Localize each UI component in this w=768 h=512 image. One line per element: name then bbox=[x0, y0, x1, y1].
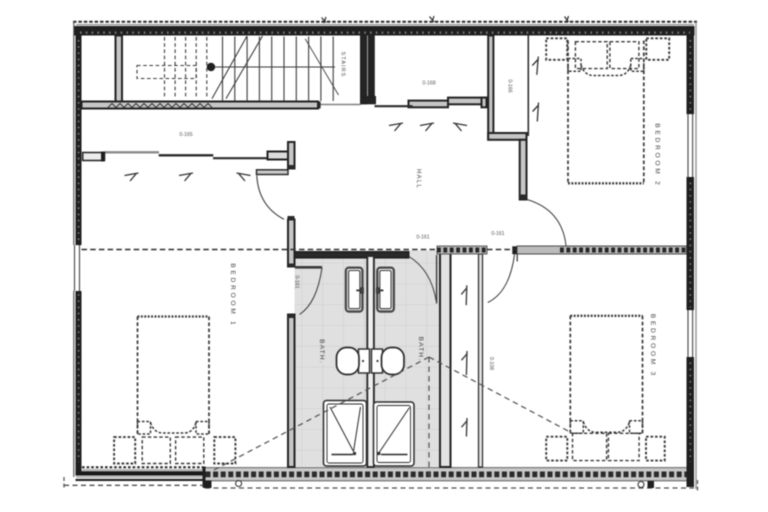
svg-text:HALL: HALL bbox=[415, 169, 421, 189]
svg-text:0-108: 0-108 bbox=[488, 357, 494, 370]
svg-text:0-166: 0-166 bbox=[507, 79, 513, 92]
svg-text:BEDROOM 3: BEDROOM 3 bbox=[649, 314, 656, 378]
svg-text:BATH.: BATH. bbox=[417, 337, 424, 362]
svg-text:0-168: 0-168 bbox=[422, 80, 435, 86]
svg-text:0-161: 0-161 bbox=[491, 231, 504, 237]
svg-text:BATH.: BATH. bbox=[318, 339, 325, 364]
svg-text:BEDROOM 2: BEDROOM 2 bbox=[653, 123, 660, 187]
svg-text:0-161: 0-161 bbox=[416, 235, 429, 241]
svg-text:0-165: 0-165 bbox=[179, 132, 192, 138]
svg-text:0-161: 0-161 bbox=[293, 275, 299, 288]
svg-text:STAIRS: STAIRS bbox=[340, 52, 346, 78]
svg-text:BEDROOM 1: BEDROOM 1 bbox=[229, 263, 236, 327]
